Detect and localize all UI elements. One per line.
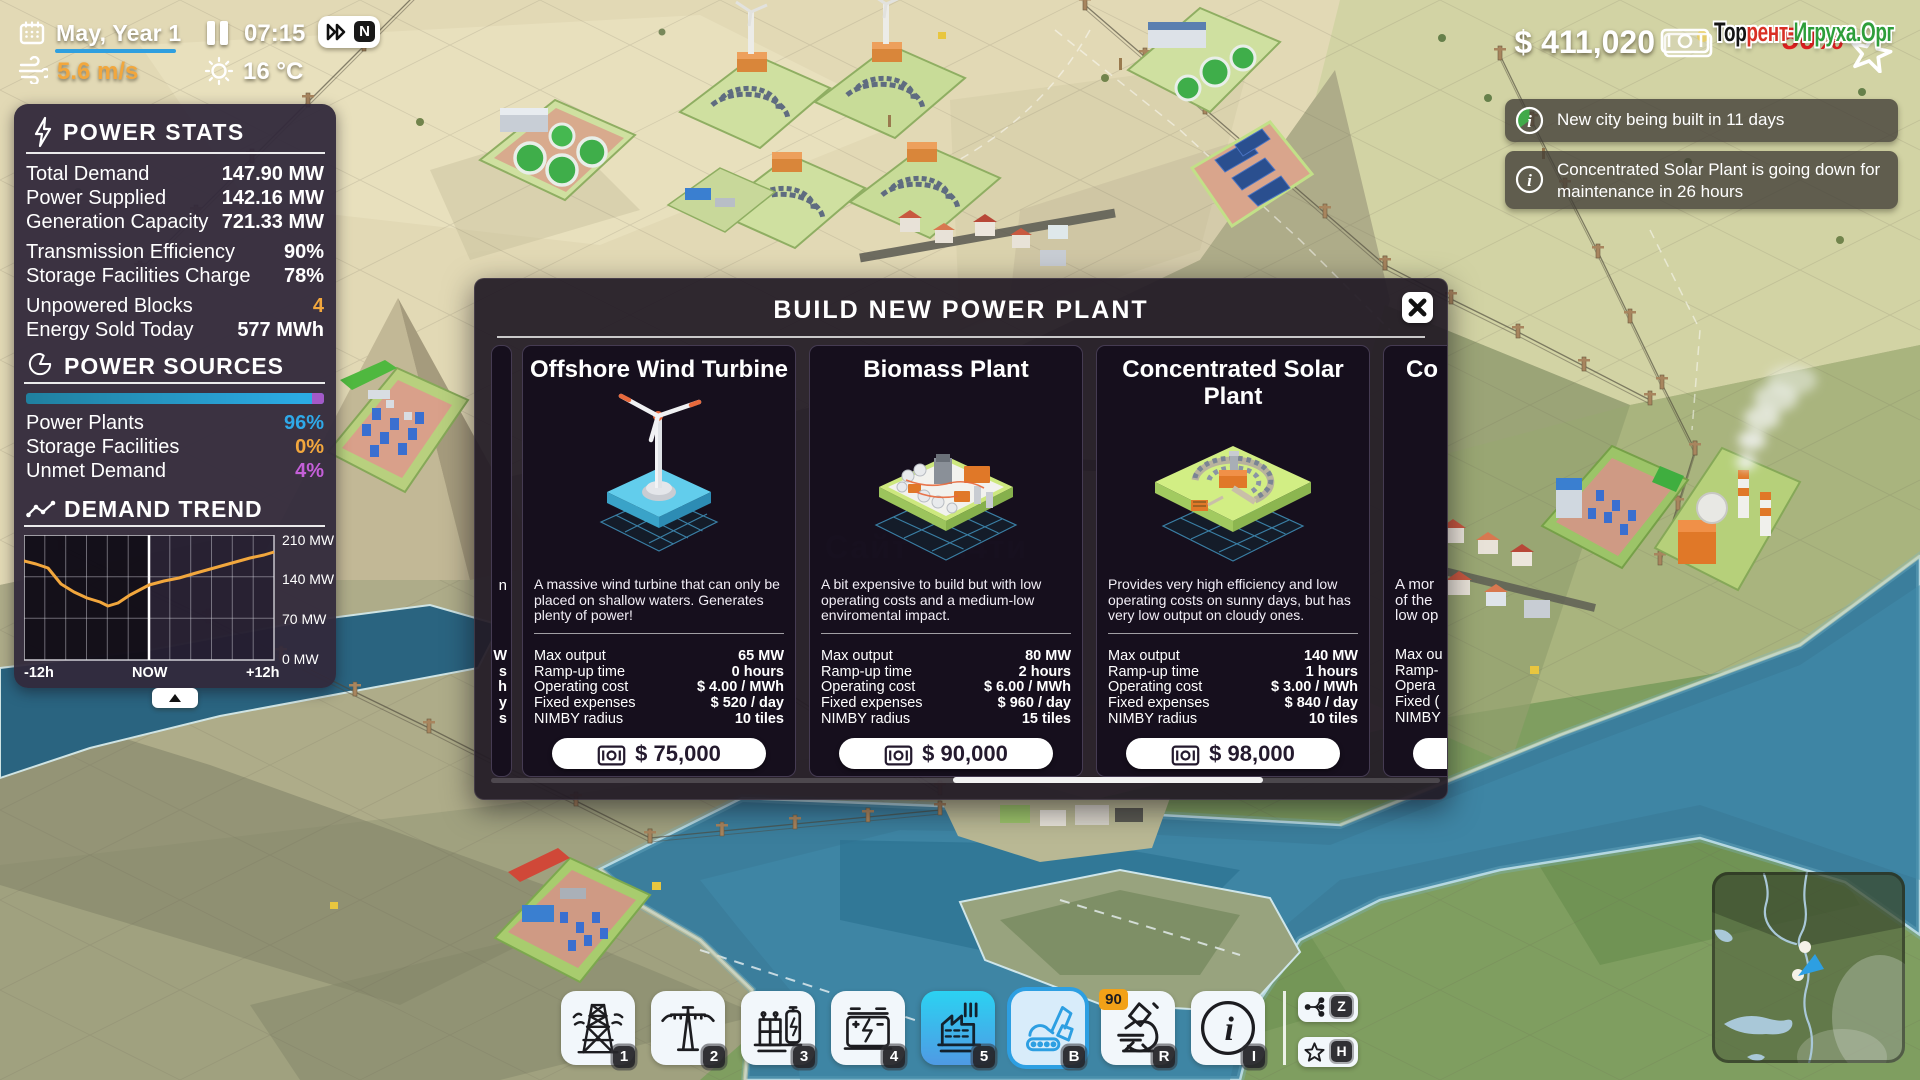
svg-text:i: i — [1225, 1011, 1235, 1048]
svg-text:NOW: NOW — [132, 665, 168, 679]
svg-text:-12h: -12h — [24, 665, 54, 679]
svg-text:210 MW: 210 MW — [282, 535, 335, 548]
svg-text:i: i — [1527, 112, 1532, 131]
svg-text:i: i — [1527, 171, 1532, 190]
svg-text:+12h: +12h — [246, 665, 279, 679]
svg-text:0 MW: 0 MW — [282, 651, 319, 667]
svg-text:70 MW: 70 MW — [282, 611, 327, 627]
svg-text:140 MW: 140 MW — [282, 571, 335, 587]
